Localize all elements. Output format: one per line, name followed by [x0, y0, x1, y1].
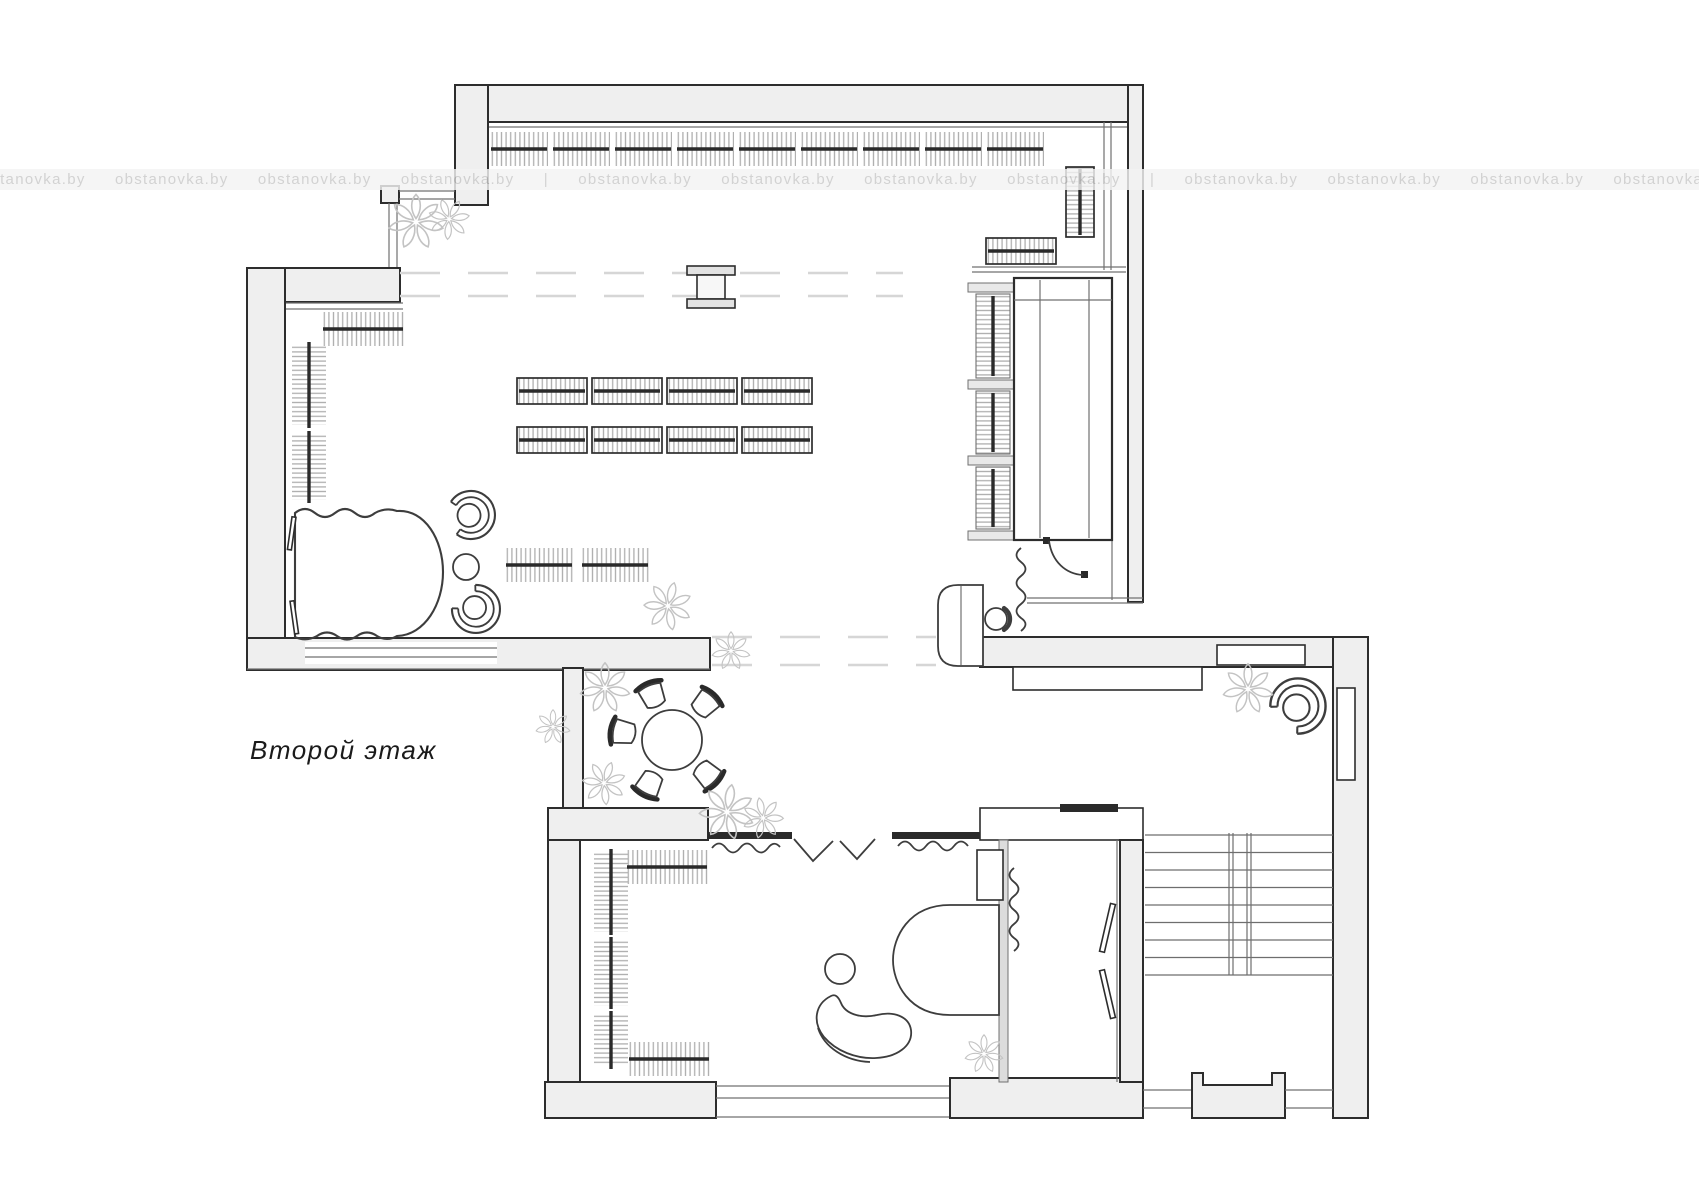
clothing-rail — [581, 548, 649, 582]
clothing-rail — [800, 132, 858, 166]
shelf-box — [977, 850, 1003, 900]
door-track — [1060, 804, 1118, 812]
clothing-rail — [862, 132, 920, 166]
clothing-rail — [628, 1042, 710, 1076]
wall-stairhall-west — [1120, 840, 1143, 1082]
curtain-track-left — [708, 832, 792, 839]
wall-fitting-west — [548, 840, 580, 1082]
clothing-rail — [292, 342, 326, 428]
ottoman — [893, 905, 999, 1015]
closet — [1014, 278, 1112, 540]
window-south — [305, 642, 497, 664]
wall-left-room-west — [247, 268, 285, 670]
stool — [985, 608, 1010, 630]
reception-desk — [938, 585, 983, 666]
i-beam-column — [687, 266, 735, 308]
clothing-rack — [517, 427, 587, 453]
clothing-rail — [986, 132, 1044, 166]
clothing-rail — [594, 1011, 628, 1069]
floor-plan-page: obstanovka.byobstanovka.byobstanovka.byo… — [0, 0, 1699, 1200]
clothing-rack — [667, 378, 737, 404]
niche-east — [1337, 688, 1355, 780]
wall-hall-east — [1128, 85, 1143, 602]
clothing-rack — [592, 378, 662, 404]
round-table — [642, 710, 702, 770]
clothing-rail — [552, 132, 610, 166]
floor-title: Второй этаж — [250, 735, 437, 766]
wall-stairblock-north — [980, 808, 1143, 840]
curtain-track-right — [892, 832, 980, 839]
clothing-rack — [986, 238, 1056, 264]
clothing-rack — [517, 378, 587, 404]
wall-fitting-south — [545, 1082, 716, 1118]
wall-lounge-west — [563, 668, 583, 808]
clothing-rail — [505, 548, 573, 582]
clothing-rail — [594, 937, 628, 1009]
window-fitting-south — [716, 1086, 950, 1117]
plant — [965, 1035, 1004, 1073]
clothing-rack — [742, 427, 812, 453]
clothing-rail — [738, 132, 796, 166]
floor-plan-canvas — [0, 0, 1699, 1200]
ledge-corridor — [1013, 667, 1202, 690]
clothing-rail — [322, 312, 404, 346]
door-swing — [1043, 537, 1088, 578]
walls — [247, 85, 1368, 1118]
clothing-rail — [626, 850, 708, 884]
plant — [639, 577, 698, 635]
armchair — [447, 580, 510, 643]
stairs — [1145, 833, 1333, 975]
fitting-curtain-enclosure — [287, 509, 443, 640]
curtain-squiggle — [1010, 868, 1019, 951]
curtain-squiggle — [898, 842, 968, 851]
column-corner — [381, 186, 399, 203]
curtain-squiggle — [712, 844, 780, 853]
wall-corridor-north — [980, 637, 1368, 667]
curtain-zigzag — [794, 839, 875, 861]
mirror-panel — [290, 601, 299, 634]
chair — [634, 677, 670, 711]
side-table — [453, 554, 479, 580]
clothing-rail — [924, 132, 982, 166]
niche-bench — [1217, 645, 1305, 665]
clothing-rail — [594, 849, 628, 935]
stair-block-south — [1143, 1073, 1333, 1118]
clothing-rack — [592, 427, 662, 453]
chair — [608, 716, 638, 748]
clothing-rail — [676, 132, 734, 166]
armchair — [1264, 667, 1337, 740]
curtain-squiggle — [1017, 548, 1026, 631]
clothing-rack — [742, 378, 812, 404]
plant — [576, 755, 632, 810]
wall-fitting-north — [548, 808, 708, 840]
bifold-door — [1100, 903, 1116, 1018]
clothing-rack — [667, 427, 737, 453]
plant — [1223, 664, 1274, 714]
clothing-rack-vertical — [1066, 167, 1094, 237]
chaise-bean — [817, 995, 912, 1062]
wall-hall-west — [455, 85, 488, 205]
clothing-rail — [614, 132, 672, 166]
wardrobe-east — [968, 283, 1016, 540]
clothing-rail — [292, 431, 326, 503]
armchair — [450, 487, 499, 541]
chair — [631, 767, 668, 802]
lounge-table-set — [608, 677, 726, 802]
wall-top — [455, 85, 1143, 122]
pouf — [825, 954, 855, 984]
wall-south-center — [950, 1078, 1143, 1118]
clothing-rail — [490, 132, 548, 166]
